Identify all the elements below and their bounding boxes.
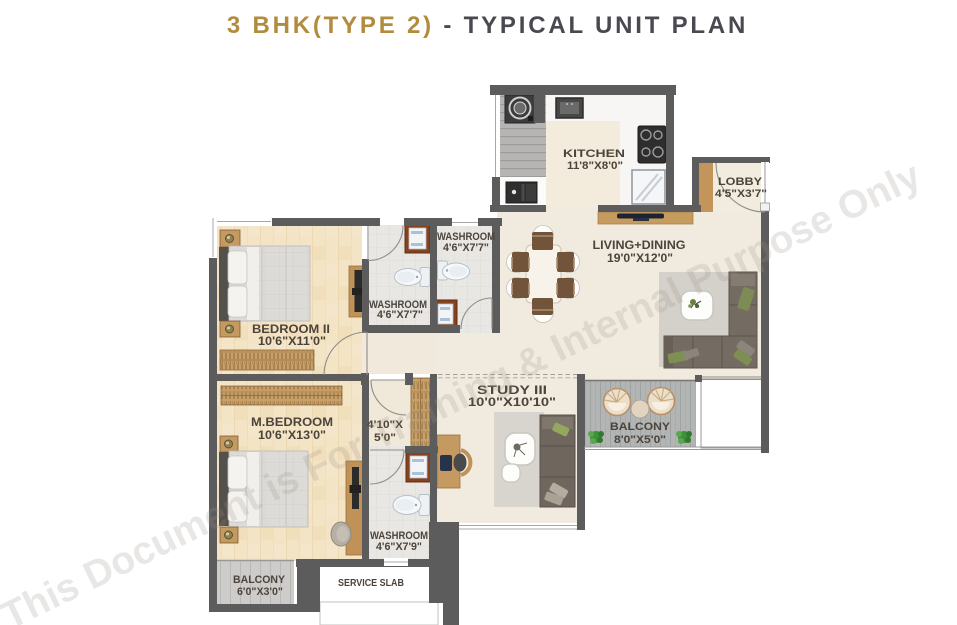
svg-text:4'6"X7'7": 4'6"X7'7" [377, 309, 423, 321]
svg-text:6'0"X3'0": 6'0"X3'0" [237, 586, 283, 598]
svg-text:KITCHEN: KITCHEN [563, 148, 625, 160]
svg-text:10'6"X13'0": 10'6"X13'0" [258, 428, 326, 442]
svg-text:SERVICE SLAB: SERVICE SLAB [338, 577, 404, 589]
svg-text:19'0"X12'0": 19'0"X12'0" [607, 251, 673, 265]
svg-text:LOBBY: LOBBY [718, 176, 763, 188]
svg-text:BALCONY: BALCONY [610, 421, 671, 433]
svg-text:4'5"X3'7": 4'5"X3'7" [715, 188, 767, 200]
svg-text:M.BEDROOM: M.BEDROOM [251, 415, 333, 429]
svg-text:11'8"X8'0": 11'8"X8'0" [567, 160, 623, 172]
svg-text:BALCONY: BALCONY [233, 574, 286, 586]
svg-text:8'0"X5'0": 8'0"X5'0" [614, 434, 666, 446]
svg-text:10'6"X11'0": 10'6"X11'0" [258, 334, 326, 348]
svg-text:4'6"X7'9": 4'6"X7'9" [376, 541, 422, 553]
svg-text:4'6"X7'7": 4'6"X7'7" [443, 242, 489, 254]
svg-text:LIVING+DINING: LIVING+DINING [593, 238, 686, 252]
